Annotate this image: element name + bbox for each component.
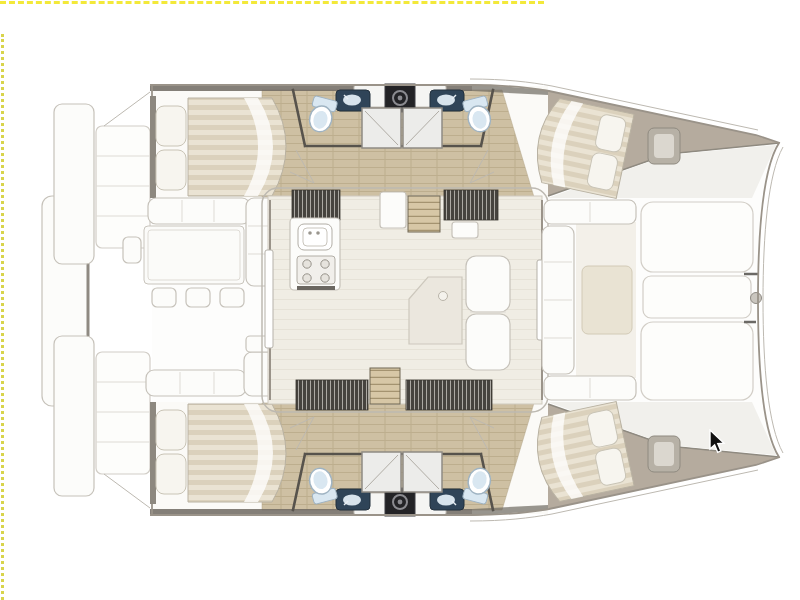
cockpit-dining-table	[144, 226, 244, 284]
wardrobe	[292, 190, 340, 220]
port-hull	[150, 402, 780, 521]
cockpit-sofa	[148, 198, 250, 224]
foredeck-panel	[643, 276, 751, 318]
forward-cockpit-table	[582, 266, 632, 334]
bow-hatch	[648, 128, 680, 164]
chair	[123, 237, 141, 263]
cabinet	[380, 192, 406, 228]
stern-platforms	[42, 92, 150, 508]
wardrobe	[296, 380, 368, 410]
wardrobe	[444, 190, 498, 220]
port-swim-platform	[54, 336, 94, 496]
starboard-companionway-stairs	[408, 196, 440, 232]
galley	[290, 218, 340, 290]
guide-line-top	[0, 1, 544, 4]
forward-cockpit	[542, 200, 636, 400]
foredeck-sunpad	[641, 322, 753, 400]
port-companionway-stairs	[370, 368, 400, 404]
starboard-transom-steps	[96, 126, 150, 248]
pillow	[156, 106, 186, 146]
floorplan-viewer	[0, 0, 800, 600]
table-fitting	[439, 292, 448, 301]
chair	[220, 288, 244, 307]
starboard-hull	[150, 79, 780, 198]
floorplan-canvas	[0, 0, 800, 600]
chair	[152, 288, 176, 307]
cursor-arrow-icon	[708, 429, 730, 457]
guide-line-left	[1, 34, 4, 600]
aft-bench	[146, 370, 246, 396]
salon-sofa	[466, 256, 510, 312]
pillow	[156, 150, 186, 190]
windlass	[751, 293, 762, 304]
port-transom-steps	[96, 352, 150, 474]
bow-rail	[763, 147, 783, 453]
wardrobe	[406, 380, 492, 410]
starboard-swim-platform	[54, 104, 94, 264]
chair	[186, 288, 210, 307]
aft-sliding-door	[265, 250, 273, 348]
salon	[262, 188, 548, 412]
salon-sofa	[466, 314, 510, 370]
salon-seat	[452, 222, 478, 238]
foredeck-sunpad	[641, 202, 753, 272]
